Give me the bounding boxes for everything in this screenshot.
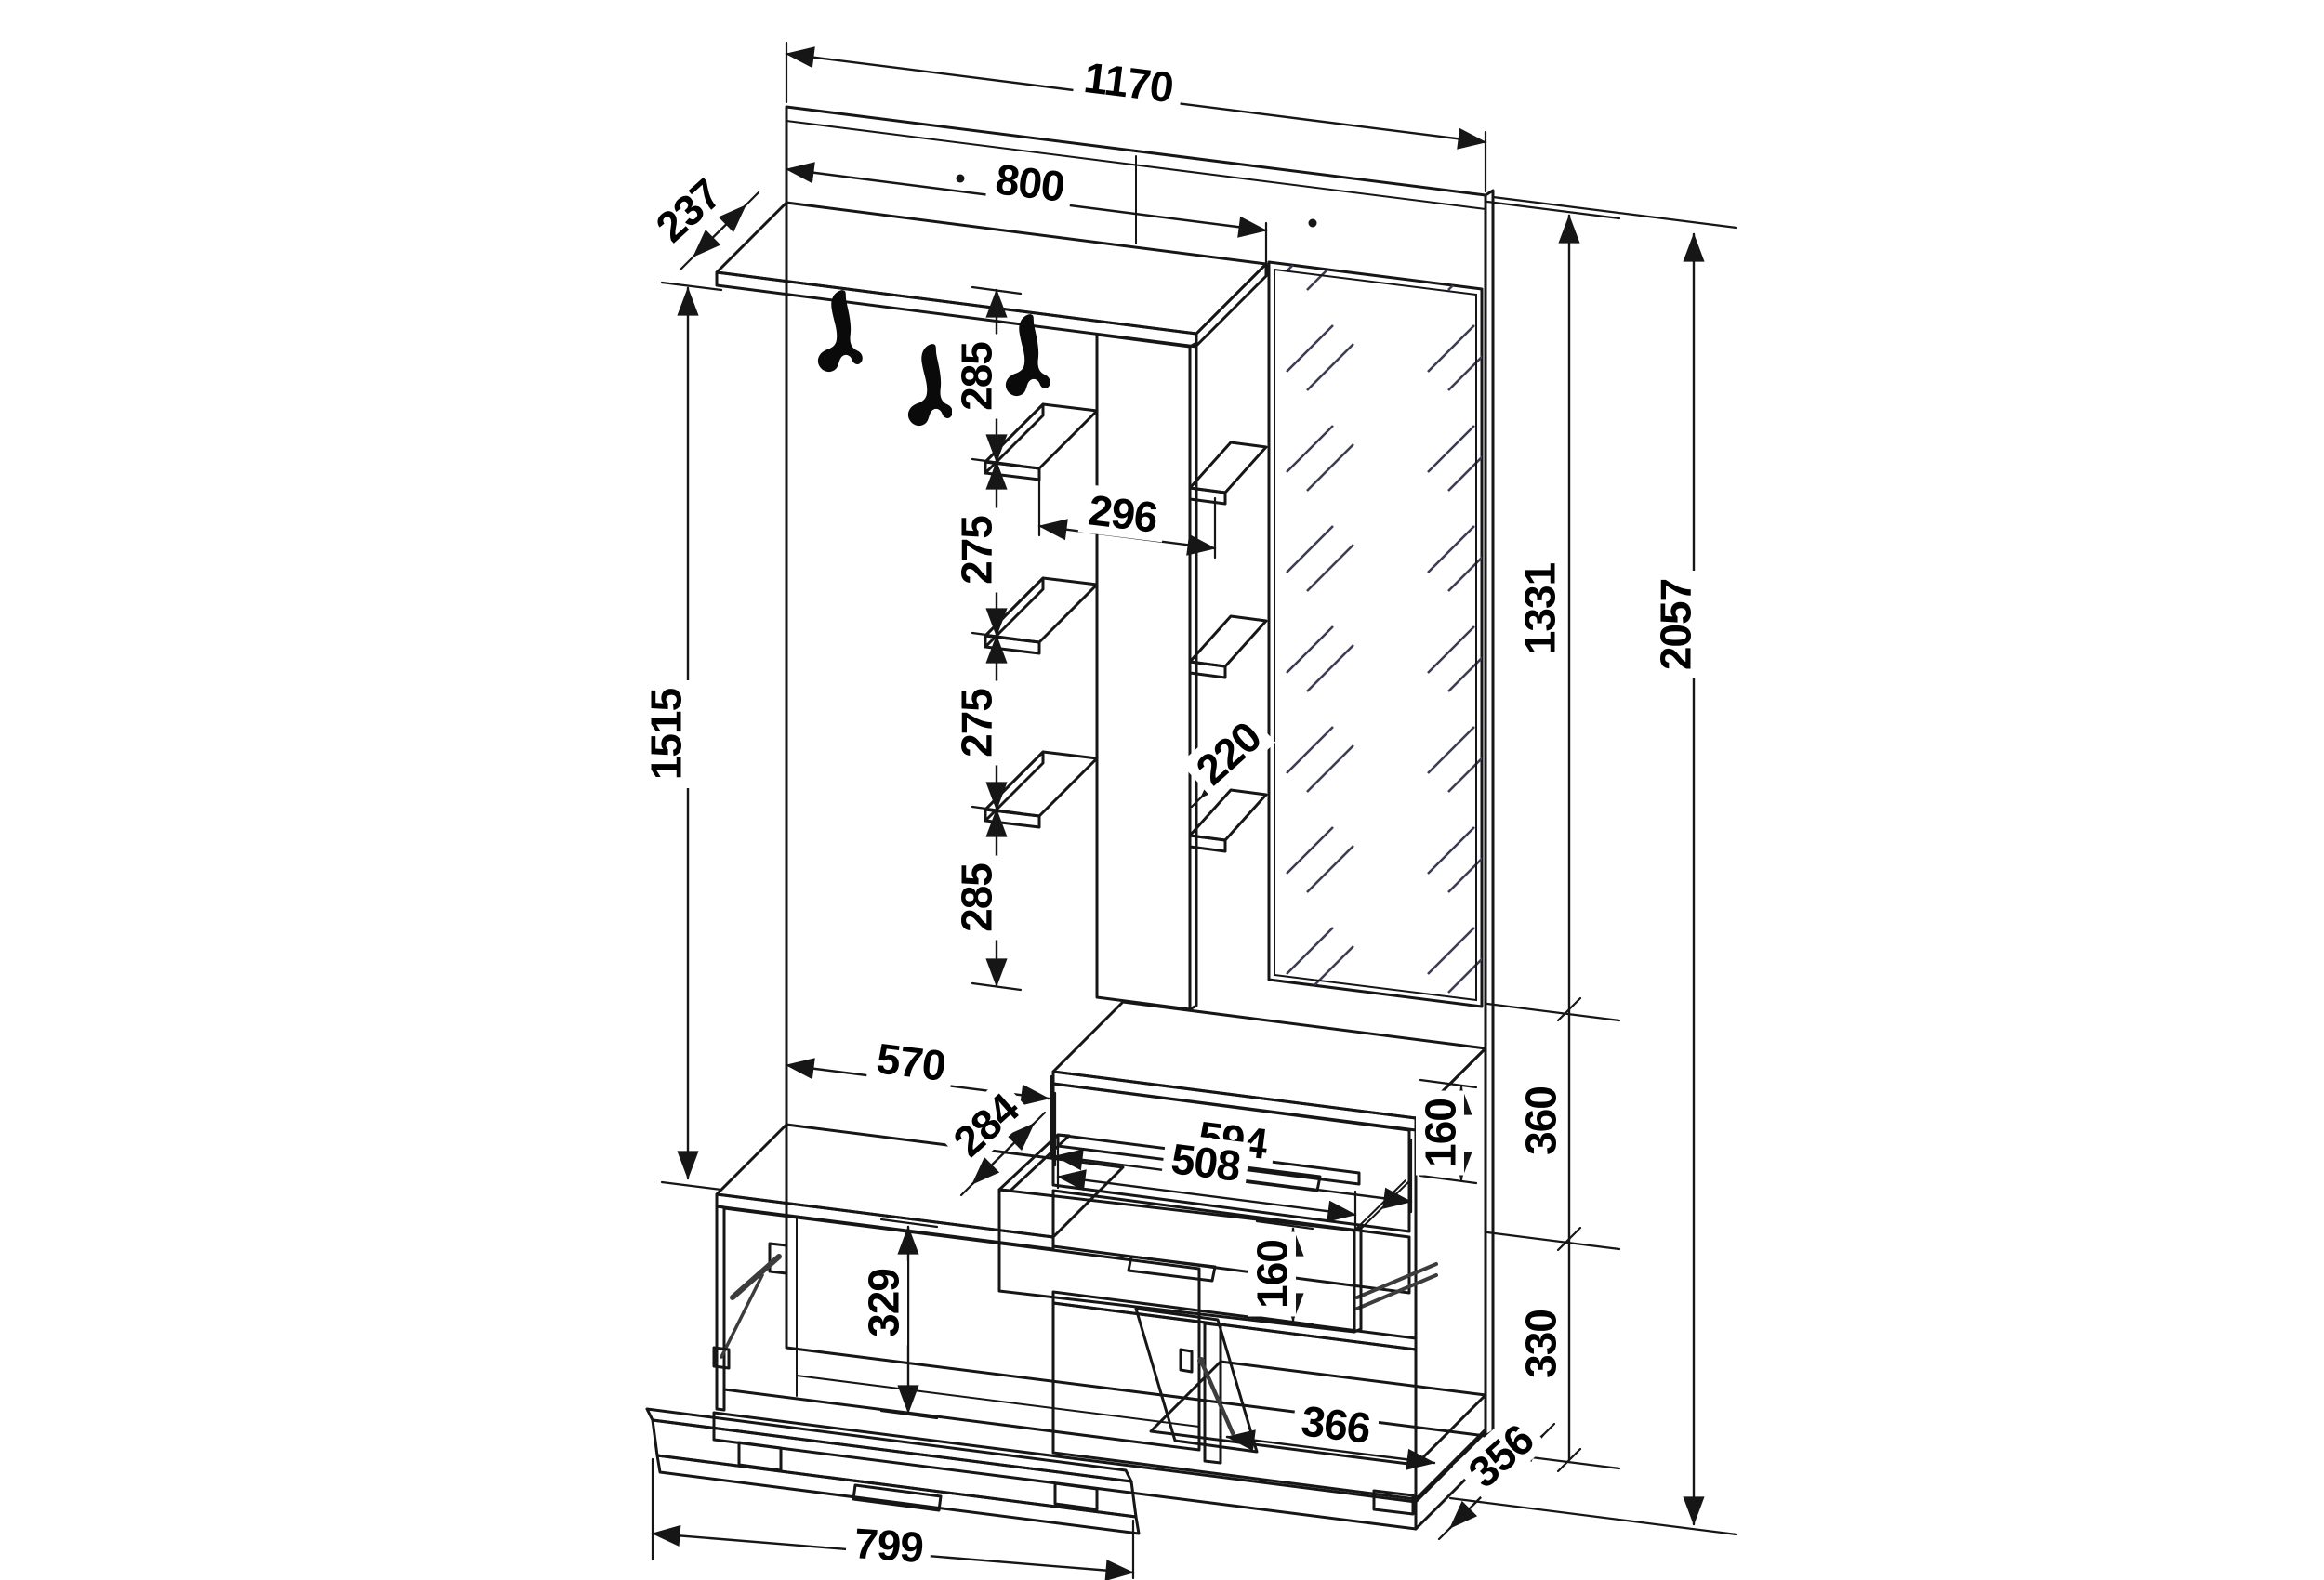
right-side-shelves xyxy=(1190,442,1266,851)
dim-label-gap-bottom: 285 xyxy=(952,856,1001,941)
dim-label-bench-width: 570 xyxy=(866,1033,957,1091)
svg-text:570: 570 xyxy=(874,1034,948,1090)
svg-text:360: 360 xyxy=(1517,1086,1565,1155)
shoe-cabinet-cavity xyxy=(724,1208,1199,1450)
side-shelf xyxy=(985,404,1097,480)
right-compartment-flap xyxy=(1136,1309,1257,1452)
svg-text:1170: 1170 xyxy=(1081,53,1175,112)
cabinet-floor-line xyxy=(797,1376,1199,1427)
svg-text:800: 800 xyxy=(993,154,1067,211)
dim-label-base-depth: 356 xyxy=(1453,1409,1549,1502)
left-side-shelves xyxy=(985,404,1097,827)
dim-label-drawer2-height: 160 xyxy=(1248,1232,1297,1317)
cam-screw-dot xyxy=(1309,219,1317,228)
dim-label-upper-section-height: 360 xyxy=(1516,1079,1565,1164)
side-shelf xyxy=(1190,790,1266,851)
dimension-lines xyxy=(653,43,1736,1578)
svg-text:285: 285 xyxy=(953,342,1001,411)
svg-text:366: 366 xyxy=(1299,1396,1373,1453)
dim-label-gap-lower-mid: 275 xyxy=(952,681,1001,766)
dim-label-drawer1-height: 160 xyxy=(1416,1091,1465,1176)
dim-label-mirror-section-height: 1331 xyxy=(1515,555,1565,663)
svg-text:296: 296 xyxy=(1086,485,1160,542)
lower-divider xyxy=(1205,1323,1221,1463)
svg-text:799: 799 xyxy=(852,1519,924,1572)
svg-text:2057: 2057 xyxy=(1652,579,1700,670)
svg-text:275: 275 xyxy=(953,516,1001,585)
svg-text:330: 330 xyxy=(1517,1310,1565,1378)
dimension-labels: 1170800237151528527527528529622013312057… xyxy=(640,51,1700,1573)
svg-text:160: 160 xyxy=(1417,1099,1465,1167)
side-shelf xyxy=(1190,442,1266,504)
dim-label-total-height: 2057 xyxy=(1651,571,1700,678)
shoe-cabinet-flap xyxy=(647,1409,1139,1534)
side-shelf xyxy=(1190,616,1266,678)
dim-label-lower-section-height: 330 xyxy=(1516,1302,1565,1387)
mirror xyxy=(1269,262,1482,1007)
shoe-cabinet xyxy=(717,1125,1199,1450)
dim-label-total-width: 1170 xyxy=(1072,51,1185,112)
top-shelf xyxy=(717,203,1266,347)
svg-text:160: 160 xyxy=(1248,1240,1297,1309)
dim-right-chain xyxy=(1487,202,1619,1471)
technical-drawing-canvas: 1170800237151528527527528529622013312057… xyxy=(0,0,2324,1580)
furniture-diagram: 1170800237151528527527528529622013312057… xyxy=(0,0,2324,1580)
dim-label-gap-top: 285 xyxy=(952,335,1001,419)
dim-label-shelf-depth: 237 xyxy=(640,164,736,257)
dim-label-flap-width: 799 xyxy=(845,1518,932,1573)
coat-hook-icon xyxy=(908,344,953,426)
foot xyxy=(1055,1483,1097,1509)
svg-text:285: 285 xyxy=(953,863,1001,932)
mirror-glass-hatch xyxy=(1269,262,1482,1007)
svg-text:329: 329 xyxy=(860,1269,908,1337)
shelf-column xyxy=(1097,335,1196,1009)
dim-label-drawer-inner-width: 508 xyxy=(1161,1133,1251,1192)
svg-text:275: 275 xyxy=(953,689,1001,757)
side-shelf xyxy=(985,578,1097,653)
stay-pivot xyxy=(1197,1357,1205,1364)
svg-text:1515: 1515 xyxy=(642,688,691,780)
side-shelf xyxy=(985,752,1097,827)
dim-label-side-shelf-depth: 220 xyxy=(1181,706,1276,799)
dim-label-floor-width: 366 xyxy=(1291,1395,1381,1454)
dim-label-cabinet-inner-height: 329 xyxy=(859,1261,908,1346)
dim-label-gap-upper-mid: 275 xyxy=(952,508,1001,593)
svg-text:1331: 1331 xyxy=(1516,562,1565,654)
dim-label-hook-panel-height: 1515 xyxy=(641,680,691,788)
dim-label-drawer-inner-depth: 284 xyxy=(938,1078,1034,1171)
flap-handle-notch xyxy=(1181,1350,1192,1372)
dim-label-shelf-width: 800 xyxy=(985,153,1076,212)
dim-label-shelf-column-width: 296 xyxy=(1078,484,1169,543)
svg-text:508: 508 xyxy=(1169,1134,1243,1191)
cam-screw-dot xyxy=(957,175,965,183)
